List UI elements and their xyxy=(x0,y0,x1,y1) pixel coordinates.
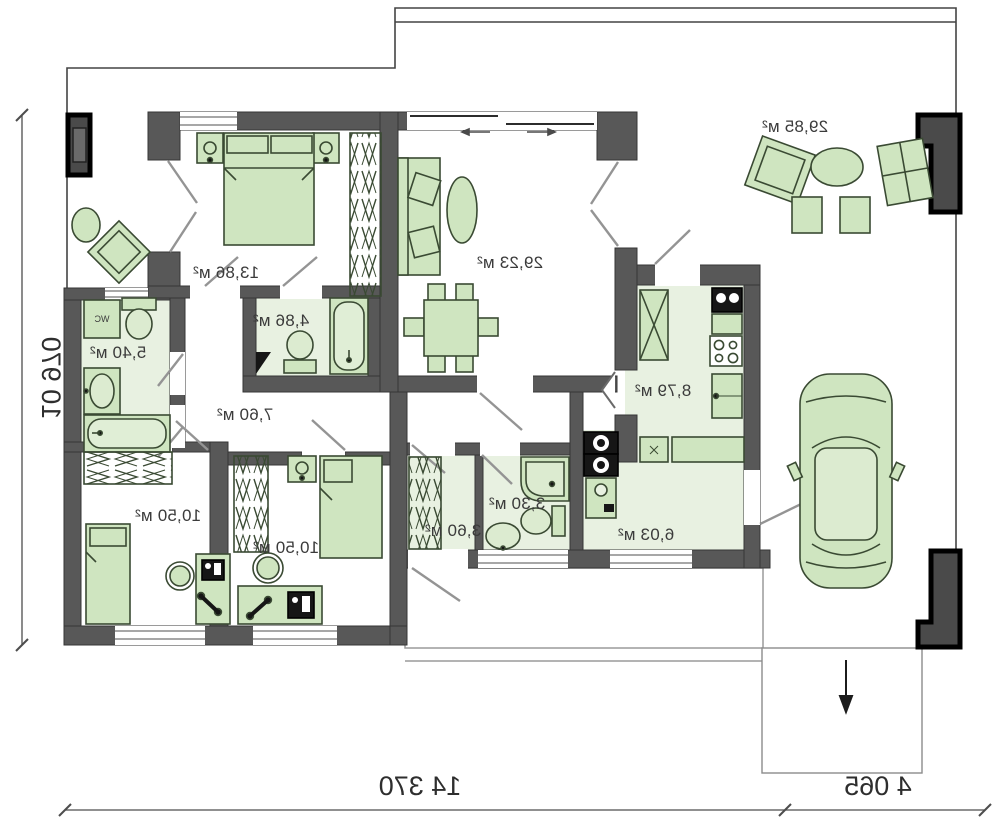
double-bed xyxy=(224,133,314,245)
label-bedroom-1: 10,50 м² xyxy=(135,506,201,525)
bathtub xyxy=(330,298,368,374)
label-bedroom-main: 13,86 м² xyxy=(193,263,259,282)
terrace-stool xyxy=(792,197,822,233)
terrace-table xyxy=(811,148,863,186)
label-bedroom-2: 10,50 м² xyxy=(253,538,319,557)
label-hall: 7,60 м² xyxy=(217,405,274,424)
kitchen-cabinet xyxy=(712,374,742,418)
wall-bath2-left xyxy=(243,298,256,376)
desk xyxy=(196,554,230,624)
label-toilet-room: 5,40 м² xyxy=(90,343,147,362)
label-entry: 3,60 м² xyxy=(425,521,482,540)
kitchen-island xyxy=(640,437,744,462)
washbasin xyxy=(84,368,120,414)
dim-bottom-right: 4 065 xyxy=(844,771,912,801)
wall-living-left xyxy=(380,112,398,392)
washer-dryer-stack xyxy=(584,432,618,518)
nightstand xyxy=(288,456,316,482)
car xyxy=(787,374,904,588)
wall-living-bottom xyxy=(243,376,617,392)
kitchen-sink xyxy=(712,288,742,312)
nightstand xyxy=(197,133,223,163)
floor-plan-page: 13,86 м² 4,86 м² 29,23 м² 5,40 м² 7,60 м… xyxy=(0,0,1000,822)
driveway xyxy=(762,648,922,773)
label-kitchen: 8,79 м² xyxy=(635,381,692,400)
floor-plan-drawing: 13,86 м² 4,86 м² 29,23 м² 5,40 м² 7,60 м… xyxy=(0,0,1000,822)
wall-corner-tr xyxy=(597,112,637,160)
dining-set xyxy=(404,284,498,372)
label-bathroom-2: 3,30 м² xyxy=(489,494,546,513)
wall-corner-tl xyxy=(148,112,180,160)
terrace-sofa xyxy=(877,138,933,205)
single-bed xyxy=(86,524,130,624)
wall-entry-left xyxy=(390,392,407,626)
nightstand xyxy=(313,133,339,163)
label-wc: WC xyxy=(94,314,109,324)
sofa xyxy=(398,158,441,275)
coffee-table xyxy=(447,177,477,243)
column-carport-bottom xyxy=(918,551,960,647)
stove xyxy=(710,336,742,366)
dim-bottom: 14 370 xyxy=(379,771,462,801)
kitchen-counter xyxy=(712,314,742,334)
terrace-armchair xyxy=(745,136,815,204)
label-terrace: 29,85 м² xyxy=(762,117,828,136)
wardrobe xyxy=(350,133,381,296)
terrace-stool xyxy=(840,197,870,233)
bathtub xyxy=(84,415,170,452)
label-living-room: 29,23 м² xyxy=(477,253,543,272)
label-bathroom-main: 4,86 м² xyxy=(253,311,310,330)
desk xyxy=(238,586,322,624)
fridge xyxy=(640,290,668,360)
dim-left: 10 970 xyxy=(36,337,66,420)
toilet xyxy=(284,331,316,373)
porch xyxy=(405,568,763,661)
wardrobe xyxy=(84,452,172,484)
grill-inner xyxy=(73,128,86,162)
washbasin xyxy=(486,523,520,550)
wall-kitchen-left xyxy=(615,248,637,370)
terrace-side-table xyxy=(72,208,100,242)
wall-utility-left xyxy=(570,392,583,550)
single-bed xyxy=(320,456,382,558)
label-utility: 6,03 м² xyxy=(618,525,675,544)
